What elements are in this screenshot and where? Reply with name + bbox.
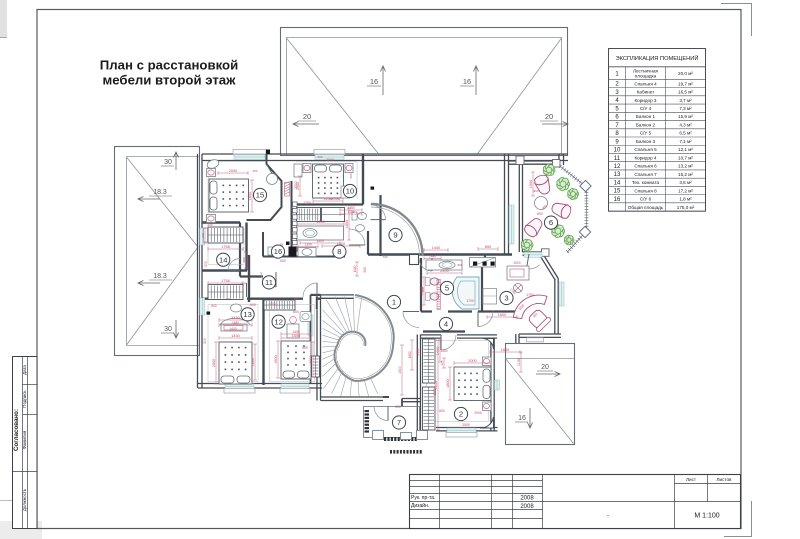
svg-text:13: 13 xyxy=(614,172,621,178)
svg-text:Общая площадь: Общая площадь xyxy=(628,205,664,210)
svg-text:ЭКСПЛИКАЦИЯ ПОМЕЩЕНИЙ: ЭКСПЛИКАЦИЯ ПОМЕЩЕНИЙ xyxy=(616,54,699,62)
svg-text:800: 800 xyxy=(537,212,543,216)
svg-text:2000: 2000 xyxy=(229,169,237,173)
svg-text:14: 14 xyxy=(614,181,621,187)
svg-text:400: 400 xyxy=(252,169,257,173)
svg-text:1400: 1400 xyxy=(316,220,324,224)
svg-text:1120: 1120 xyxy=(353,265,357,272)
svg-text:600: 600 xyxy=(270,302,276,306)
svg-text:1: 1 xyxy=(392,298,396,307)
svg-text:7: 7 xyxy=(397,418,401,427)
svg-text:1440: 1440 xyxy=(429,254,436,258)
svg-text:12: 12 xyxy=(614,164,621,170)
svg-text:Должность: Должность xyxy=(22,488,27,511)
svg-text:Кабинет: Кабинет xyxy=(637,90,655,95)
svg-text:18.3: 18.3 xyxy=(153,189,167,196)
svg-text:1758: 1758 xyxy=(221,279,229,283)
svg-text:1600: 1600 xyxy=(498,313,506,317)
svg-text:19,7 м²: 19,7 м² xyxy=(678,81,693,86)
svg-text:1430: 1430 xyxy=(231,316,239,320)
svg-text:A00: A00 xyxy=(293,297,299,301)
svg-text:2000: 2000 xyxy=(468,359,476,363)
svg-text:1800: 1800 xyxy=(446,379,450,387)
svg-text:1400: 1400 xyxy=(229,327,237,331)
svg-text:300: 300 xyxy=(203,338,207,344)
svg-text:800: 800 xyxy=(533,189,538,193)
svg-text:16: 16 xyxy=(518,415,526,422)
svg-text:8: 8 xyxy=(337,247,341,256)
svg-text:600: 600 xyxy=(211,304,217,308)
svg-text:175,0 м²: 175,0 м² xyxy=(677,205,695,210)
svg-text:3,7 м²: 3,7 м² xyxy=(679,98,692,103)
svg-text:20: 20 xyxy=(303,112,311,121)
svg-text:1480: 1480 xyxy=(232,321,239,325)
svg-text:2000: 2000 xyxy=(462,423,470,427)
svg-text:600: 600 xyxy=(293,310,299,314)
svg-text:1758: 1758 xyxy=(221,245,229,249)
svg-text:7,3 м²: 7,3 м² xyxy=(679,106,692,111)
svg-text:-: - xyxy=(607,513,609,519)
svg-text:Коридор 3: Коридор 3 xyxy=(635,98,657,103)
svg-text:С/У 6: С/У 6 xyxy=(640,197,652,202)
svg-text:30: 30 xyxy=(164,326,172,333)
svg-text:С/У 5: С/У 5 xyxy=(640,131,652,136)
svg-text:600: 600 xyxy=(395,405,401,409)
svg-text:15,2 м²: 15,2 м² xyxy=(678,172,693,177)
svg-text:2008: 2008 xyxy=(520,504,534,510)
svg-text:Балкон 2: Балкон 2 xyxy=(636,123,656,128)
svg-text:12: 12 xyxy=(274,317,282,326)
svg-text:6,5 м²: 6,5 м² xyxy=(679,131,692,136)
svg-text:1440: 1440 xyxy=(432,246,440,250)
svg-text:3,6 м²: 3,6 м² xyxy=(679,180,692,185)
svg-text:13,2 м²: 13,2 м² xyxy=(678,164,693,169)
svg-text:2000: 2000 xyxy=(513,261,520,265)
svg-text:4: 4 xyxy=(444,320,448,329)
svg-text:900: 900 xyxy=(363,267,367,273)
svg-text:16: 16 xyxy=(614,197,621,203)
svg-text:1600: 1600 xyxy=(292,334,300,338)
svg-text:16: 16 xyxy=(274,247,282,256)
svg-text:Подпись: Подпись xyxy=(22,390,27,408)
svg-text:16: 16 xyxy=(370,77,378,86)
svg-text:225: 225 xyxy=(440,360,444,365)
svg-text:Спальня 4: Спальня 4 xyxy=(634,81,657,86)
svg-text:1400: 1400 xyxy=(316,239,324,243)
svg-text:1250: 1250 xyxy=(303,201,311,205)
svg-text:1500: 1500 xyxy=(529,180,533,188)
svg-text:1600: 1600 xyxy=(501,348,509,352)
svg-text:2000: 2000 xyxy=(474,411,482,415)
svg-text:268: 268 xyxy=(201,233,205,238)
svg-text:1100: 1100 xyxy=(517,358,521,366)
svg-text:Спальня 6: Спальня 6 xyxy=(634,164,657,169)
svg-text:10,7 м²: 10,7 м² xyxy=(678,155,693,160)
svg-text:1500: 1500 xyxy=(398,366,402,374)
svg-text:600: 600 xyxy=(349,173,353,178)
svg-text:Фамилия: Фамилия xyxy=(22,430,27,449)
svg-text:600: 600 xyxy=(439,409,445,413)
svg-text:Балкон 1: Балкон 1 xyxy=(636,114,656,119)
svg-text:Тех. комната: Тех. комната xyxy=(632,180,660,185)
svg-text:1,8 м²: 1,8 м² xyxy=(679,197,692,202)
svg-text:15,9 м²: 15,9 м² xyxy=(678,114,693,119)
svg-text:800: 800 xyxy=(457,263,462,267)
svg-text:11: 11 xyxy=(614,156,621,162)
svg-text:600: 600 xyxy=(207,223,212,227)
svg-text:20,0 м²: 20,0 м² xyxy=(678,71,693,76)
svg-text:1500: 1500 xyxy=(433,388,437,395)
svg-text:600: 600 xyxy=(317,155,322,159)
svg-text:1800: 1800 xyxy=(251,358,255,366)
svg-text:1800: 1800 xyxy=(345,220,349,228)
svg-text:16: 16 xyxy=(463,77,471,86)
svg-text:1400: 1400 xyxy=(292,330,299,334)
svg-text:1430: 1430 xyxy=(231,334,239,338)
svg-text:М 1:100: М 1:100 xyxy=(694,513,719,520)
svg-text:4,3 м²: 4,3 м² xyxy=(679,123,692,128)
svg-text:С/У 4: С/У 4 xyxy=(640,106,652,111)
svg-text:9: 9 xyxy=(393,231,397,240)
svg-text:2400: 2400 xyxy=(440,269,448,273)
svg-text:мебели второй этаж: мебели второй этаж xyxy=(103,73,237,88)
svg-text:Рук. пр-та.: Рук. пр-та. xyxy=(411,495,435,501)
svg-text:700: 700 xyxy=(382,255,387,259)
svg-text:5: 5 xyxy=(445,284,449,293)
svg-text:1700: 1700 xyxy=(526,293,534,297)
svg-text:1800: 1800 xyxy=(434,381,438,389)
svg-text:600: 600 xyxy=(280,259,286,263)
svg-text:14: 14 xyxy=(219,255,227,264)
svg-text:Дата: Дата xyxy=(22,365,27,375)
svg-text:12,1 м²: 12,1 м² xyxy=(678,147,693,152)
svg-text:15: 15 xyxy=(614,189,621,195)
svg-text:600: 600 xyxy=(242,257,246,262)
svg-text:Листов: Листов xyxy=(717,477,732,482)
svg-text:20: 20 xyxy=(545,112,553,121)
svg-text:10: 10 xyxy=(614,148,621,154)
svg-text:16,5 м²: 16,5 м² xyxy=(678,90,693,95)
svg-text:30: 30 xyxy=(164,159,172,166)
svg-text:13: 13 xyxy=(243,310,251,319)
svg-text:850: 850 xyxy=(485,245,491,249)
svg-text:1400: 1400 xyxy=(440,349,447,353)
svg-text:600: 600 xyxy=(250,303,256,307)
svg-text:600: 600 xyxy=(302,346,308,350)
svg-text:Коридор 4: Коридор 4 xyxy=(635,155,657,160)
svg-text:2000: 2000 xyxy=(212,359,216,367)
svg-text:10: 10 xyxy=(346,187,354,196)
svg-text:1800: 1800 xyxy=(274,355,278,363)
svg-text:Спальня 5: Спальня 5 xyxy=(634,147,657,152)
svg-text:15: 15 xyxy=(256,191,264,200)
svg-text:План с расстановкой: План с расстановкой xyxy=(100,58,238,73)
svg-text:4×2450: 4×2450 xyxy=(330,197,340,201)
svg-text:1800: 1800 xyxy=(408,351,412,358)
svg-text:Лист: Лист xyxy=(686,477,697,482)
svg-text:6: 6 xyxy=(549,218,553,227)
svg-text:17,2 м²: 17,2 м² xyxy=(678,188,693,193)
svg-text:2: 2 xyxy=(459,410,463,419)
svg-text:1100: 1100 xyxy=(348,210,355,214)
svg-text:A00: A00 xyxy=(225,297,231,301)
svg-text:20: 20 xyxy=(541,364,549,371)
svg-text:200: 200 xyxy=(204,261,208,267)
svg-text:2000: 2000 xyxy=(309,355,313,363)
svg-text:1700: 1700 xyxy=(466,299,474,303)
svg-text:2500: 2500 xyxy=(294,181,298,189)
svg-text:100: 100 xyxy=(421,287,425,292)
svg-text:Спальня 8: Спальня 8 xyxy=(634,188,657,193)
svg-text:7,1 м²: 7,1 м² xyxy=(679,139,692,144)
svg-text:Дизайн.: Дизайн. xyxy=(411,502,429,509)
svg-text:1500: 1500 xyxy=(416,348,420,356)
svg-text:3: 3 xyxy=(504,294,508,303)
svg-text:Балкон 3: Балкон 3 xyxy=(636,139,656,144)
svg-text:Спальня 7: Спальня 7 xyxy=(634,172,657,177)
svg-text:площадка: площадка xyxy=(635,74,657,79)
svg-text:Согласовано:: Согласовано: xyxy=(13,409,20,451)
svg-text:2008: 2008 xyxy=(520,496,534,502)
svg-text:11: 11 xyxy=(265,278,273,287)
svg-text:1800: 1800 xyxy=(248,192,252,200)
svg-text:2000: 2000 xyxy=(326,158,334,162)
svg-text:18.3: 18.3 xyxy=(153,273,167,280)
